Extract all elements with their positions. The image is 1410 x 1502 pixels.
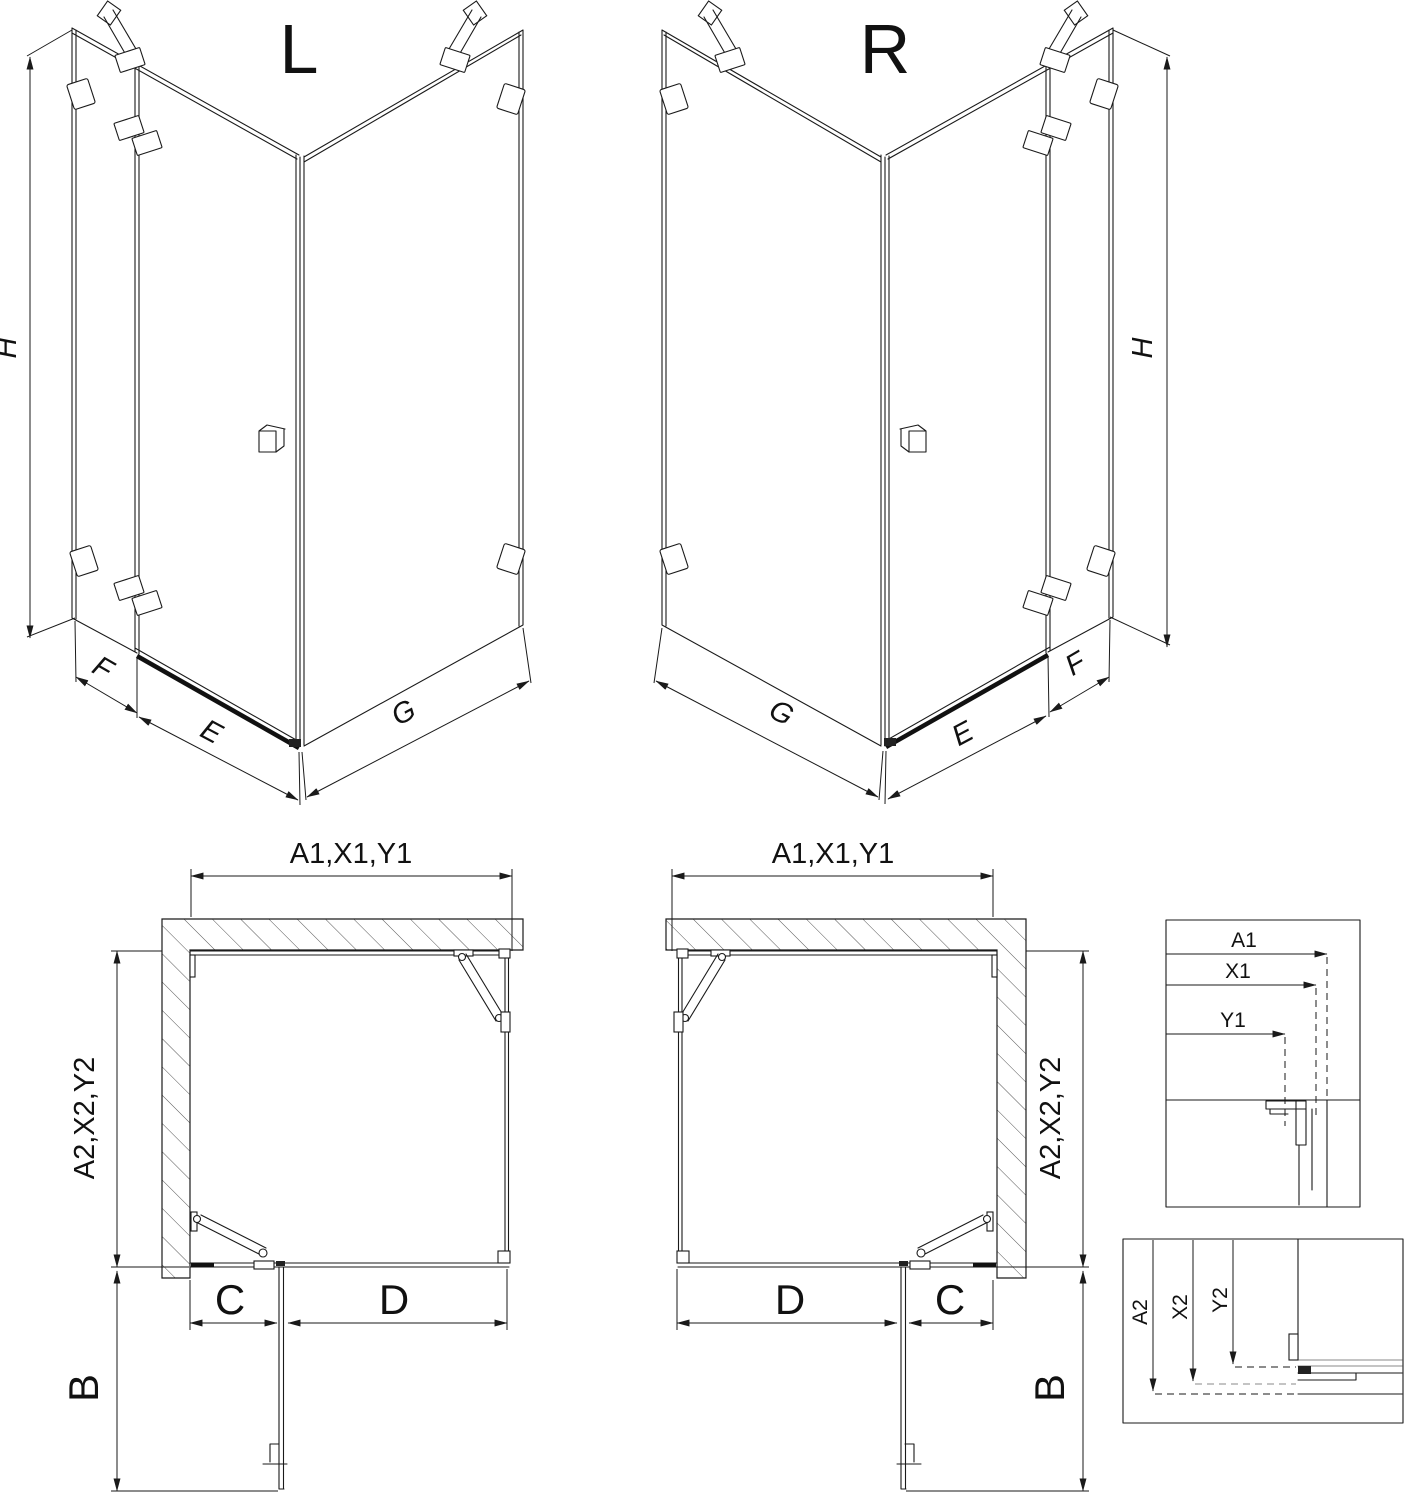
iso-view-right: R H F E G xyxy=(654,1,1170,804)
wall-hatch xyxy=(162,919,523,1278)
wall-bracket-icon xyxy=(497,543,526,575)
wall-bracket-icon xyxy=(497,83,526,115)
plan-left-label-b: B xyxy=(60,1374,107,1402)
support-brace-icon xyxy=(698,1,745,73)
iso-left-label-h: H xyxy=(0,337,23,358)
iso-left-extension-lines xyxy=(27,30,531,805)
iso-left-title: L xyxy=(280,10,319,88)
detail-label-y1: Y1 xyxy=(1220,1009,1246,1032)
drawing-canvas: L H F E G R H F xyxy=(0,0,1410,1502)
plan-right-label-depth: A2,X2,Y2 xyxy=(1035,1057,1067,1180)
plan-left-label-depth: A2,X2,Y2 xyxy=(69,1057,101,1180)
wall-bracket-icon xyxy=(1090,78,1119,110)
glass-end-block xyxy=(677,949,688,958)
iso-right-dim-f xyxy=(1050,677,1109,712)
door-pivot-cap xyxy=(276,1261,285,1266)
wall-bracket-icon xyxy=(660,543,689,575)
detail-depth-border xyxy=(1123,1239,1403,1423)
wall-bracket-icon xyxy=(70,545,99,577)
detail-label-x2: X2 xyxy=(1169,1294,1192,1320)
iso-left-dim-g xyxy=(307,681,529,797)
plan-view-right: A1,X1,Y1 A2,X2,Y2 B C D xyxy=(666,838,1089,1491)
plan-right-label-width: A1,X1,Y1 xyxy=(772,838,895,870)
plan-right-label-b: B xyxy=(1026,1374,1073,1402)
plan-left-label-c: C xyxy=(215,1276,245,1323)
plan-view-left: A1,X1,Y1 A2,X2,Y2 B C D xyxy=(60,838,523,1491)
iso-right-label-h: H xyxy=(1127,337,1159,358)
iso-right-title: R xyxy=(860,10,911,88)
support-brace-icon xyxy=(191,1212,267,1257)
iso-right-label-e: E xyxy=(947,715,980,753)
iso-right-rail-end-cap xyxy=(884,738,896,746)
iso-right-dim-g xyxy=(656,681,878,797)
iso-view-left: L H F E G xyxy=(0,1,531,805)
detail-label-a1: A1 xyxy=(1231,929,1257,952)
iso-left-label-e: E xyxy=(195,713,228,751)
wall-bracket-icon xyxy=(660,83,689,115)
detail-width-profile xyxy=(1266,1100,1327,1207)
plan-left-glass xyxy=(190,950,509,1489)
detail-label-x1: X1 xyxy=(1225,960,1251,983)
detail-depth-box: A2 X2 Y2 xyxy=(1123,1239,1403,1423)
iso-right-label-g: G xyxy=(764,694,799,733)
glass-end-block xyxy=(677,1251,689,1263)
iso-left-label-g: G xyxy=(386,694,421,733)
door-pivot-block xyxy=(254,1261,274,1269)
support-brace-icon xyxy=(440,1,487,73)
wall-hatch xyxy=(666,919,1026,1278)
detail-label-a2: A2 xyxy=(1129,1299,1152,1325)
support-brace-icon xyxy=(97,1,145,73)
wall-profile xyxy=(190,955,195,977)
plan-right-label-c: C xyxy=(935,1276,965,1323)
iso-left-label-f: F xyxy=(87,650,120,688)
support-brace-icon xyxy=(1040,1,1088,73)
wall-profile xyxy=(992,955,997,977)
wall-bracket-icon xyxy=(1087,545,1116,577)
iso-right-label-f: F xyxy=(1060,645,1093,683)
plan-left-label-d: D xyxy=(379,1276,409,1323)
detail-width-border xyxy=(1166,920,1360,1207)
detail-width-box: A1 X1 Y1 xyxy=(1166,920,1360,1207)
plan-right-label-d: D xyxy=(775,1276,805,1323)
door-handle-icon xyxy=(259,425,285,452)
door-pivot-block xyxy=(910,1261,930,1269)
iso-left-dim-f xyxy=(76,677,137,713)
wall-bracket-icon xyxy=(67,78,96,110)
detail-depth-profile xyxy=(1298,1239,1402,1394)
glass-end-block xyxy=(498,1251,510,1263)
support-brace-icon xyxy=(454,950,510,1032)
plan-right-glass xyxy=(678,950,997,1489)
shower-enclosure-technical-drawing: L H F E G R H F xyxy=(0,0,1410,1502)
glass-end-block xyxy=(499,949,510,958)
plan-left-label-width: A1,X1,Y1 xyxy=(290,838,413,870)
door-handle-icon xyxy=(900,425,926,452)
iso-left-rail-end-cap xyxy=(289,739,301,747)
support-brace-icon xyxy=(917,1212,993,1257)
door-pivot-cap xyxy=(899,1261,908,1266)
detail-label-y2: Y2 xyxy=(1209,1287,1232,1313)
